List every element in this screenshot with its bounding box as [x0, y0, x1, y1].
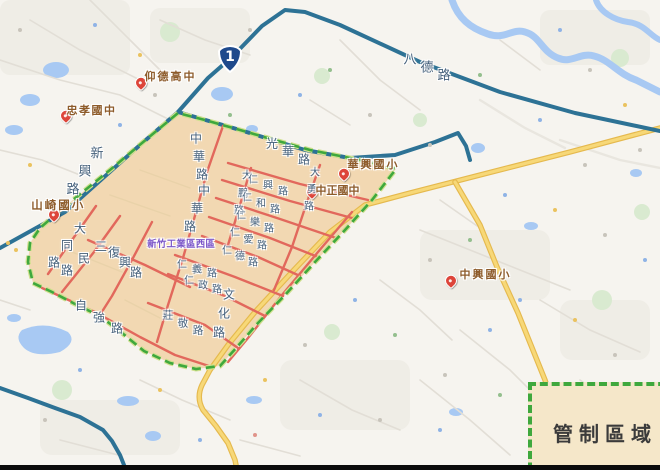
bottom-letterbox: [0, 465, 660, 470]
legend-label: 管制區域: [553, 418, 657, 447]
highway-1-shield: 1: [217, 45, 243, 73]
legend-controlled-area: 管制區域: [528, 382, 660, 470]
map-canvas[interactable]: 八德路新興路光華路中華路中華路大勇路大鵬路文化路大同路三民路復興路自強路莊敬路仁…: [0, 0, 660, 470]
highway-number: 1: [217, 49, 243, 65]
